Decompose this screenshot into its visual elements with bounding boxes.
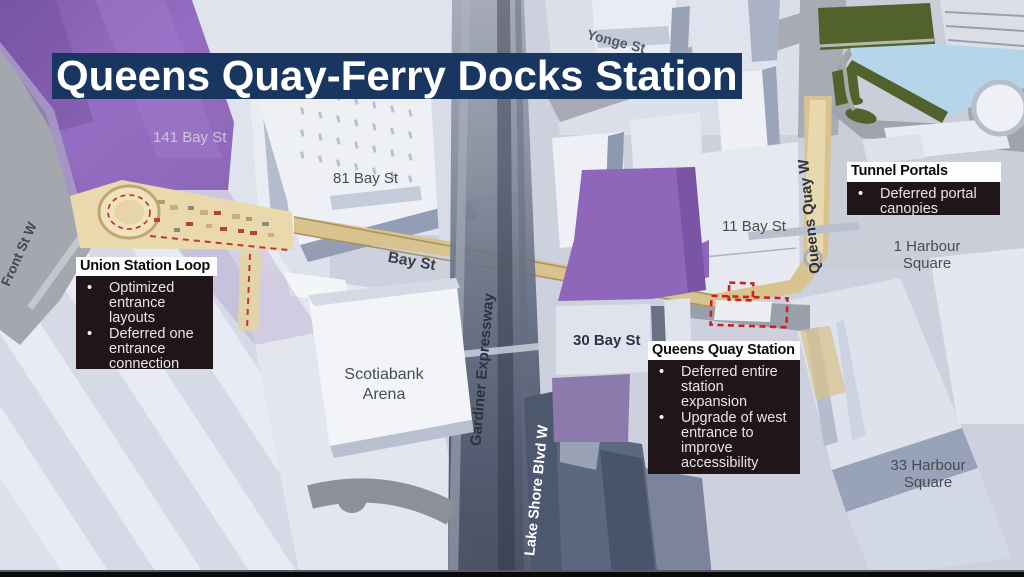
svg-text:81 Bay St: 81 Bay St [333,170,399,187]
svg-text:1 Harbour: 1 Harbour [894,238,961,255]
svg-text:30 Bay St: 30 Bay St [573,332,641,349]
svg-text:Scotiabank: Scotiabank [344,366,424,383]
svg-text:Arena: Arena [363,386,406,403]
svg-text:141 Bay St: 141 Bay St [153,129,227,146]
svg-text:33 Harbour: 33 Harbour [890,457,965,474]
svg-text:Square: Square [904,474,952,491]
svg-text:Square: Square [903,255,951,272]
svg-text:11 Bay St: 11 Bay St [722,218,787,235]
